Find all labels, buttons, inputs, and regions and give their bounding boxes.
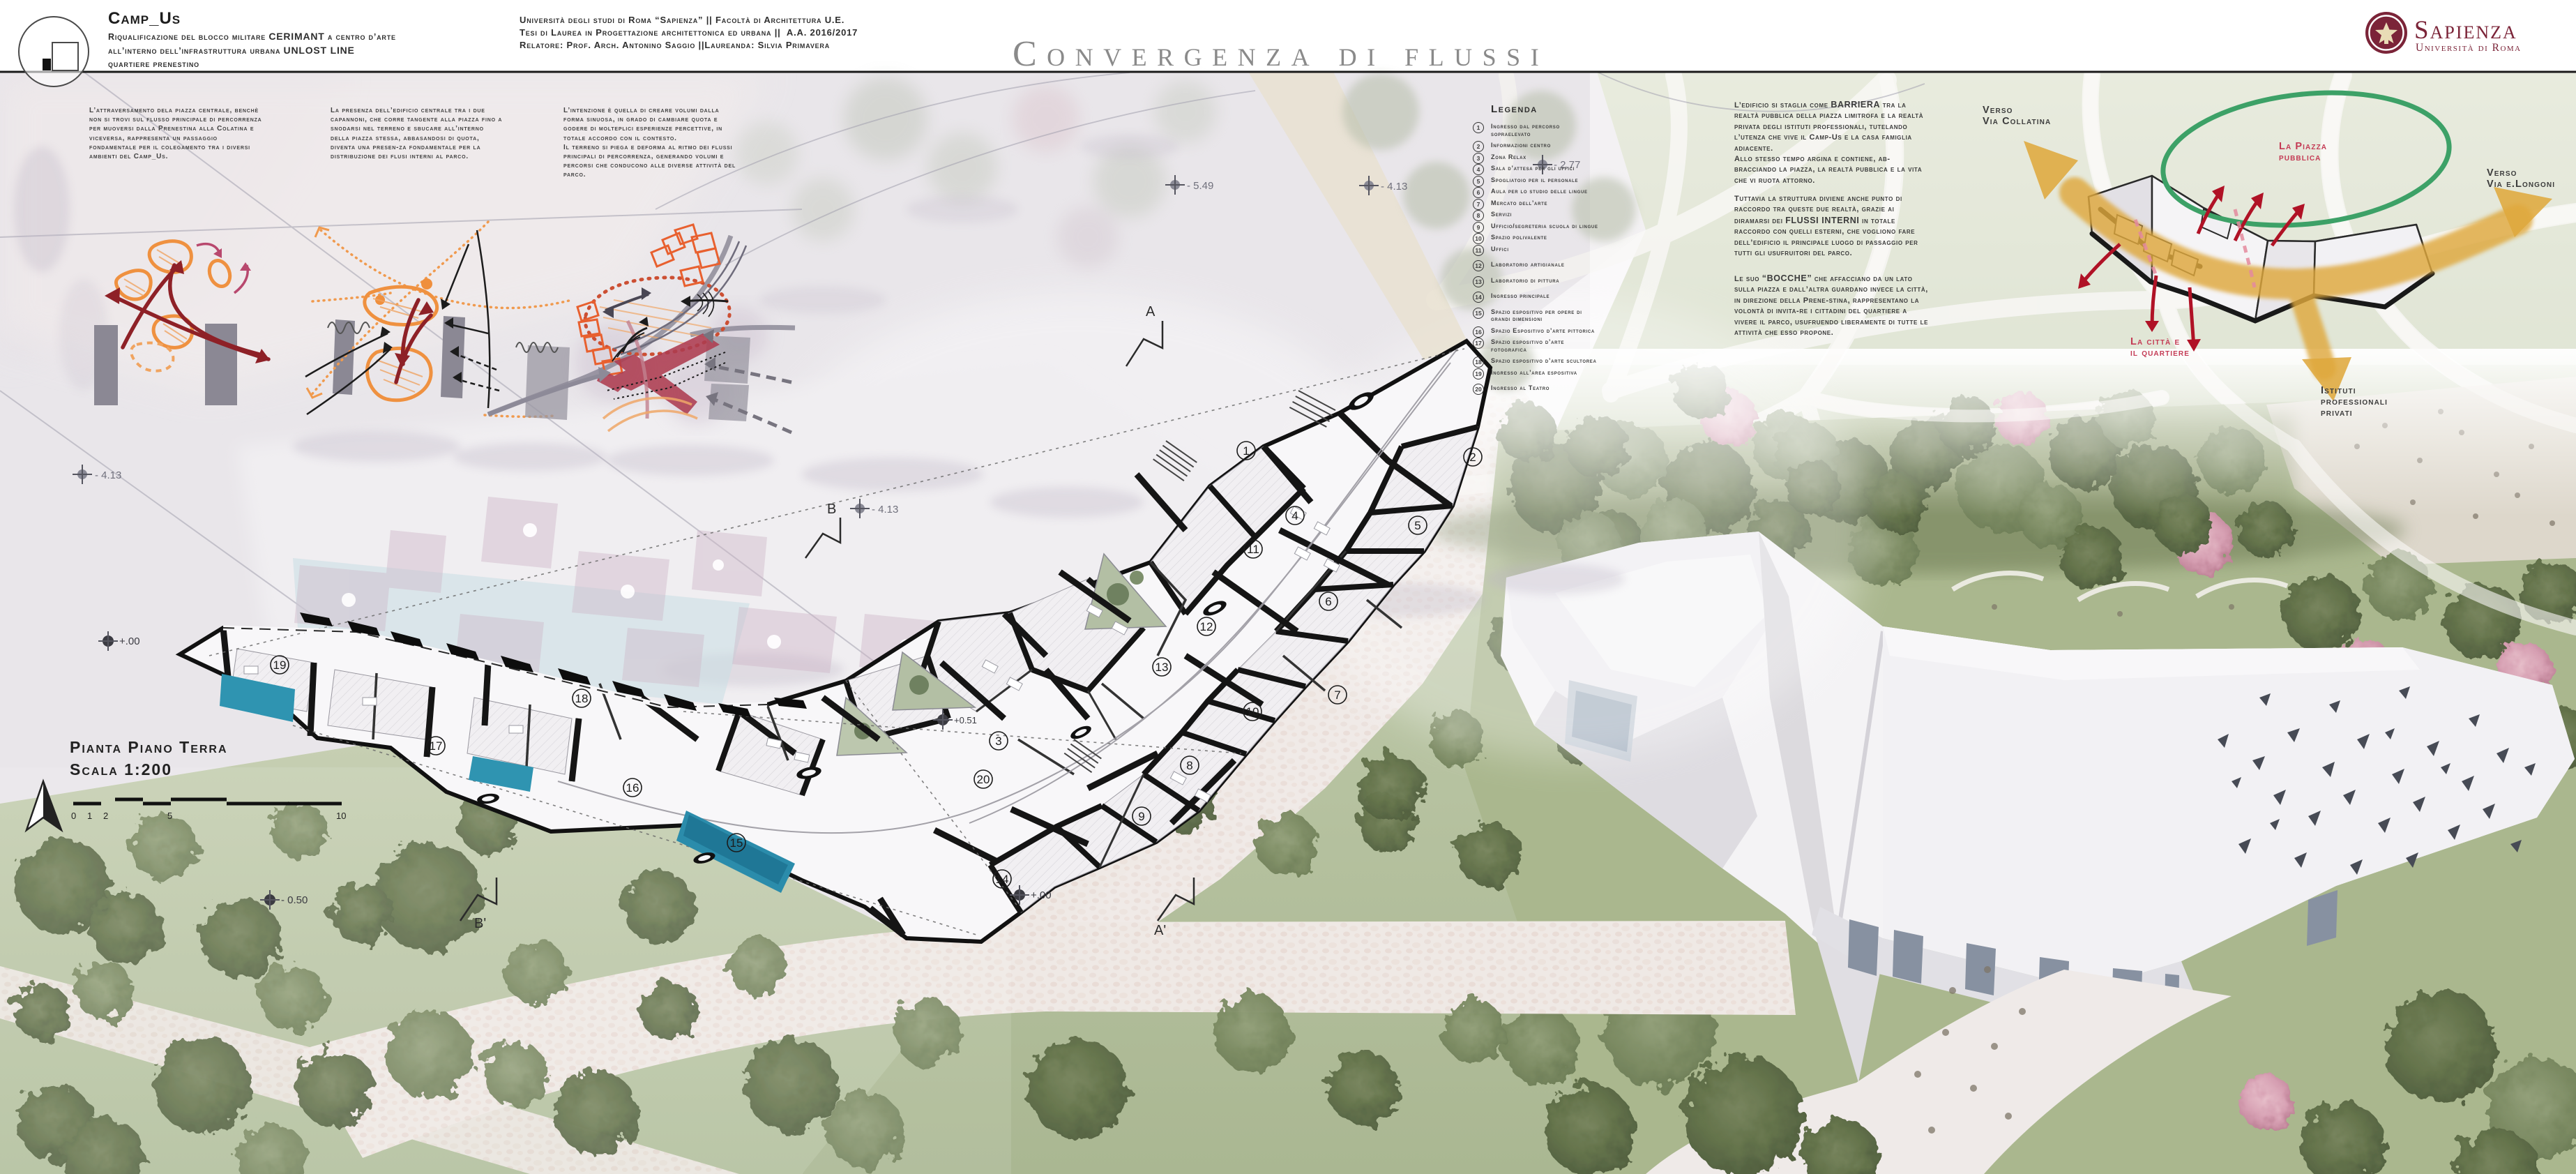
svg-text:+.00: +.00 xyxy=(119,635,140,647)
svg-text:14: 14 xyxy=(996,873,1009,886)
svg-text:B: B xyxy=(827,502,836,517)
svg-text:5: 5 xyxy=(167,811,172,821)
svg-text:10: 10 xyxy=(336,811,346,821)
svg-text:0: 0 xyxy=(71,811,76,821)
svg-text:19: 19 xyxy=(273,659,287,672)
svg-text:12: 12 xyxy=(1200,620,1213,633)
svg-text:15: 15 xyxy=(730,836,743,850)
svg-text:18: 18 xyxy=(575,692,589,705)
svg-text:3: 3 xyxy=(995,735,1001,748)
svg-text:+0.51: +0.51 xyxy=(954,715,977,725)
svg-text:- 0.50: - 0.50 xyxy=(281,894,308,906)
svg-text:9: 9 xyxy=(1138,810,1144,823)
svg-text:11: 11 xyxy=(1247,543,1259,556)
svg-text:13: 13 xyxy=(1156,661,1169,674)
svg-text:- 5.49: - 5.49 xyxy=(1187,180,1213,192)
svg-text:1: 1 xyxy=(1243,444,1249,458)
svg-text:20: 20 xyxy=(977,773,990,786)
svg-text:10: 10 xyxy=(1246,705,1259,718)
svg-text:- 4.13: - 4.13 xyxy=(872,504,898,515)
svg-text:2: 2 xyxy=(103,811,108,821)
svg-text:2: 2 xyxy=(1469,451,1476,464)
svg-text:4: 4 xyxy=(1291,509,1298,522)
svg-text:8: 8 xyxy=(1186,759,1192,772)
svg-text:17: 17 xyxy=(430,739,443,753)
svg-text:5: 5 xyxy=(1414,519,1420,532)
svg-text:A': A' xyxy=(1154,923,1166,938)
svg-text:16: 16 xyxy=(626,781,639,795)
svg-text:+.00: +.00 xyxy=(1031,889,1052,901)
svg-text:A: A xyxy=(1146,304,1156,319)
svg-text:- 4.13: - 4.13 xyxy=(1381,181,1407,193)
svg-text:6: 6 xyxy=(1325,595,1331,608)
svg-text:- 4.13: - 4.13 xyxy=(95,469,121,481)
svg-text:B': B' xyxy=(474,916,486,931)
svg-text:1: 1 xyxy=(87,811,92,821)
svg-text:7: 7 xyxy=(1334,688,1340,702)
